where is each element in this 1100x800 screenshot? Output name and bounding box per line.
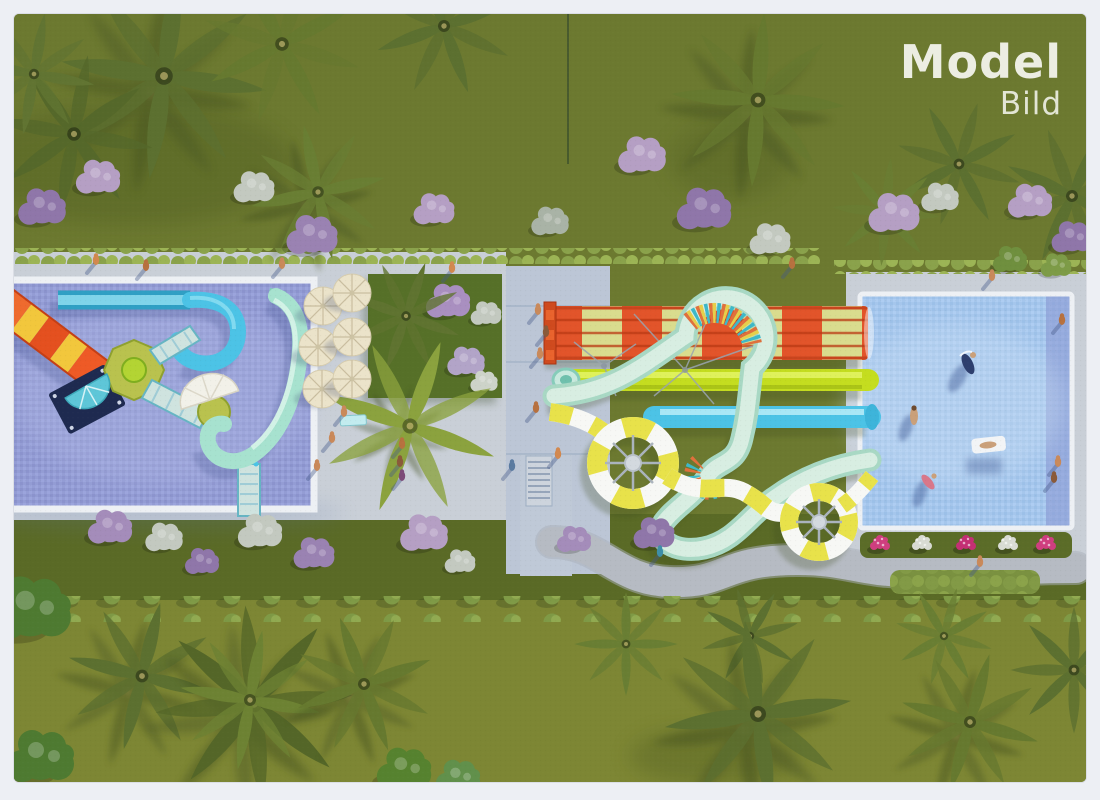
page: { "watermark": { "title": "Model", "subt…: [0, 0, 1100, 800]
waterpark-render: Model Bild: [14, 14, 1086, 782]
texture-overlay: [14, 14, 1086, 782]
waterpark-scene: [14, 14, 1086, 782]
